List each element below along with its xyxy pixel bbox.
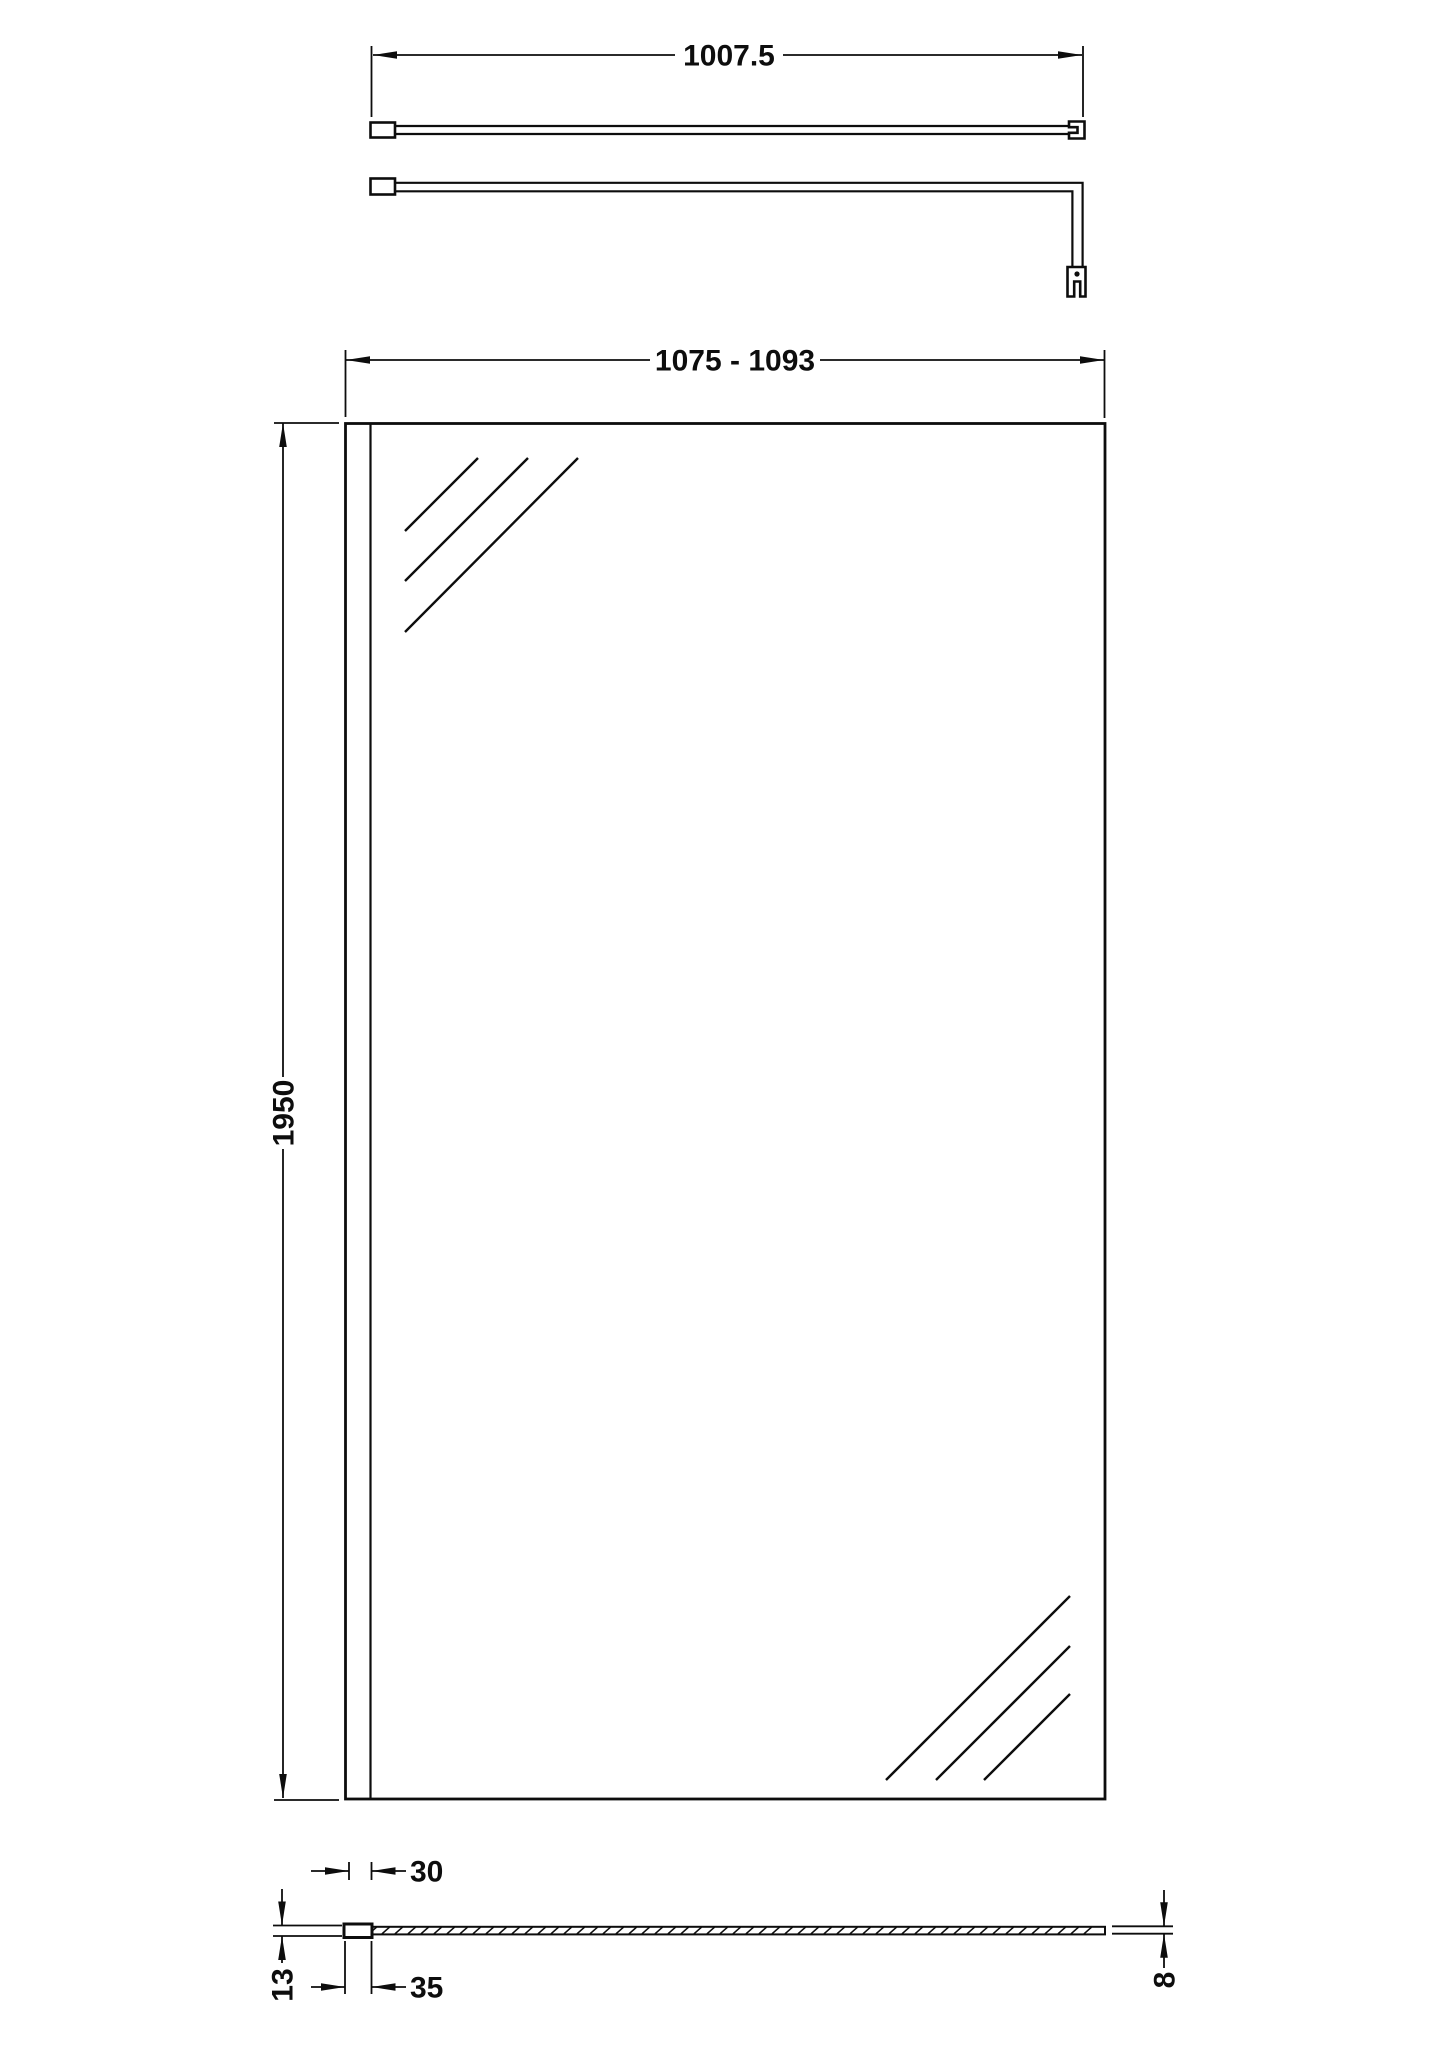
dim-label-profile-width: 30 [410,1856,443,1889]
dim-label-support-arm-length: 1007.5 [683,40,775,73]
dim-panel-height: 1950 [268,423,340,1800]
dim-support-arm-length: 1007.5 [372,40,1084,118]
dim-profile-depth-35: 35 [311,1941,443,2005]
dim-glass-thickness-8: 8 [1112,1890,1182,1988]
clevis-fork-end [1068,267,1086,297]
wall-bracket-end [1069,122,1085,139]
plan-view [344,1924,1105,1938]
dim-label-profile-depth: 35 [410,1972,443,2005]
dim-label-panel-width: 1075 - 1093 [655,345,815,378]
drawing-sheet: 1007.5 1075 - 1093 1950 [0,0,1445,2045]
dim-label-profile-thickness: 13 [267,1968,300,2001]
panel-front-view [346,424,1106,1800]
support-arm-bent-view [371,179,1086,297]
dim-label-panel-height: 1950 [268,1080,301,1147]
clevis-pin-hole [1074,271,1079,276]
wall-profile-plan [344,1924,372,1938]
support-arm-straight-view [371,122,1085,139]
dim-panel-width: 1075 - 1093 [346,345,1105,419]
technical-drawing: 1007.5 1075 - 1093 1950 [0,0,1445,2045]
dim-label-glass-thickness: 8 [1149,1972,1182,1989]
dim-profile-width-30: 30 [311,1856,443,1889]
